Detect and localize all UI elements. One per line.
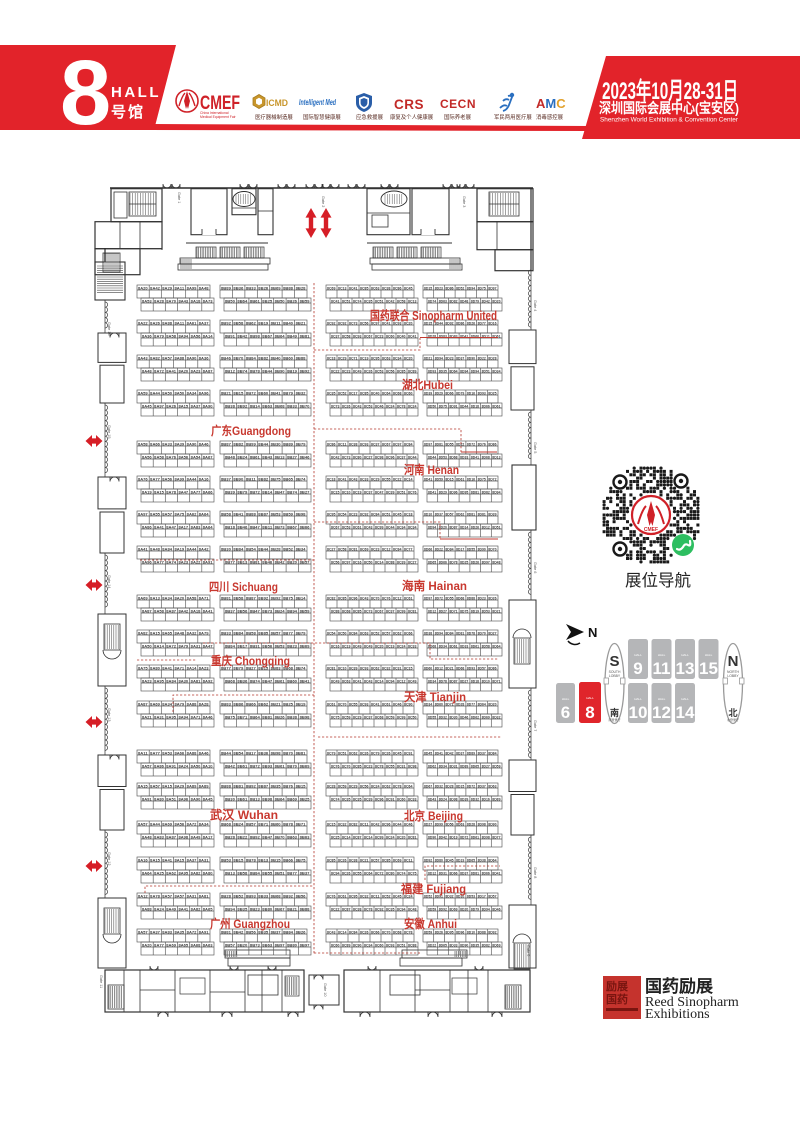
- svg-text:8B81: 8B81: [233, 784, 243, 788]
- svg-text:8B22: 8B22: [237, 835, 247, 839]
- svg-text:8B21: 8B21: [287, 907, 297, 911]
- svg-text:10: 10: [629, 703, 648, 722]
- svg-text:8C93: 8C93: [360, 442, 369, 446]
- svg-text:8D99: 8D99: [435, 822, 443, 826]
- svg-text:8B60: 8B60: [283, 356, 293, 360]
- svg-text:8C43: 8C43: [364, 679, 373, 683]
- svg-text:Intelligent Med: Intelligent Med: [299, 98, 337, 107]
- svg-text:8C85: 8C85: [360, 286, 369, 290]
- svg-text:8B62: 8B62: [246, 321, 256, 325]
- svg-text:8B53: 8B53: [271, 512, 281, 516]
- svg-text:8C84: 8C84: [349, 631, 358, 635]
- svg-text:8C44: 8C44: [408, 455, 417, 459]
- svg-text:8C17: 8C17: [349, 391, 358, 395]
- svg-text:8A48: 8A48: [175, 631, 185, 635]
- svg-text:8D20: 8D20: [492, 299, 500, 303]
- svg-text:8C37: 8C37: [364, 490, 373, 494]
- svg-text:8A17: 8A17: [179, 525, 189, 529]
- svg-text:8C26: 8C26: [360, 751, 369, 755]
- svg-text:8A56: 8A56: [162, 477, 172, 481]
- svg-text:8B26: 8B26: [296, 930, 306, 934]
- svg-text:8D96: 8D96: [449, 490, 457, 494]
- svg-text:8C35: 8C35: [386, 907, 395, 911]
- svg-text:8D69: 8D69: [449, 907, 457, 911]
- svg-text:8C14: 8C14: [342, 835, 351, 839]
- svg-text:8D34: 8D34: [439, 644, 447, 648]
- svg-text:8D46: 8D46: [460, 715, 468, 719]
- svg-text:8B52: 8B52: [283, 547, 293, 551]
- svg-text:8B71: 8B71: [296, 822, 306, 826]
- svg-text:北: 北: [728, 707, 737, 718]
- svg-text:8C92: 8C92: [360, 512, 369, 516]
- svg-text:8C88: 8C88: [386, 560, 395, 564]
- svg-text:8C31: 8C31: [397, 764, 406, 768]
- svg-text:8D71: 8D71: [492, 679, 500, 683]
- svg-text:8A99: 8A99: [175, 477, 185, 481]
- svg-text:8B11: 8B11: [271, 321, 281, 325]
- svg-text:8B92: 8B92: [300, 369, 310, 373]
- svg-text:8C76: 8C76: [327, 894, 336, 898]
- svg-text:8B97: 8B97: [275, 943, 285, 947]
- svg-text:8D26: 8D26: [471, 525, 479, 529]
- svg-text:8A96: 8A96: [179, 797, 189, 801]
- svg-text:8C33: 8C33: [360, 477, 369, 481]
- svg-text:8C37: 8C37: [331, 334, 340, 338]
- svg-text:8B87: 8B87: [246, 596, 256, 600]
- svg-text:8D68: 8D68: [456, 666, 464, 670]
- svg-text:8B24: 8B24: [233, 822, 243, 826]
- svg-text:8B37: 8B37: [221, 477, 231, 481]
- svg-text:8C92: 8C92: [327, 321, 336, 325]
- svg-text:8B72: 8B72: [250, 764, 260, 768]
- svg-text:8B88: 8B88: [300, 907, 310, 911]
- svg-text:8D61: 8D61: [471, 835, 479, 839]
- svg-text:8B56: 8B56: [237, 609, 247, 613]
- svg-text:8B70: 8B70: [300, 404, 310, 408]
- svg-text:8B84: 8B84: [250, 871, 260, 875]
- svg-text:8D22: 8D22: [478, 356, 486, 360]
- svg-text:Gate 5: Gate 5: [533, 442, 537, 453]
- svg-text:8A89: 8A89: [187, 784, 197, 788]
- svg-text:8D14: 8D14: [460, 525, 468, 529]
- svg-text:Gate 13: Gate 13: [107, 708, 111, 722]
- svg-text:8A44: 8A44: [187, 547, 197, 551]
- svg-text:8A46: 8A46: [199, 751, 209, 755]
- svg-text:CMEF: CMEF: [644, 527, 658, 533]
- svg-text:8C52: 8C52: [371, 631, 380, 635]
- svg-text:8B38: 8B38: [287, 715, 297, 719]
- svg-text:CRS: CRS: [394, 97, 424, 112]
- svg-text:8A80: 8A80: [154, 797, 164, 801]
- svg-text:8B33: 8B33: [221, 631, 231, 635]
- svg-text:8B57: 8B57: [225, 943, 235, 947]
- svg-text:8C39: 8C39: [364, 797, 373, 801]
- svg-text:8B80: 8B80: [262, 907, 272, 911]
- svg-text:8B15: 8B15: [233, 858, 243, 862]
- svg-text:8C61: 8C61: [404, 596, 413, 600]
- svg-text:8B47: 8B47: [262, 679, 272, 683]
- svg-text:8D44: 8D44: [428, 455, 436, 459]
- svg-text:8A79: 8A79: [179, 644, 189, 648]
- svg-text:8D34: 8D34: [492, 369, 500, 373]
- svg-text:8A20: 8A20: [142, 943, 152, 947]
- svg-text:8C50: 8C50: [408, 715, 417, 719]
- svg-text:8B98: 8B98: [300, 715, 310, 719]
- svg-text:8D70: 8D70: [488, 547, 496, 551]
- svg-text:8B15: 8B15: [233, 391, 243, 395]
- svg-text:8D59: 8D59: [492, 764, 500, 768]
- svg-text:Medical Equipment Fair: Medical Equipment Fair: [200, 115, 236, 119]
- svg-text:8B81: 8B81: [221, 930, 231, 934]
- svg-text:福建 Fujiang: 福建 Fujiang: [400, 881, 466, 896]
- svg-text:HALL: HALL: [562, 697, 570, 701]
- svg-text:8A36: 8A36: [142, 334, 152, 338]
- svg-text:8B61: 8B61: [237, 797, 247, 801]
- svg-text:8B34: 8B34: [296, 547, 306, 551]
- svg-text:8A46: 8A46: [203, 715, 213, 719]
- svg-text:8A31: 8A31: [191, 644, 201, 648]
- svg-text:8B84: 8B84: [233, 547, 243, 551]
- svg-text:8B89: 8B89: [221, 286, 231, 290]
- svg-text:8B42: 8B42: [225, 764, 235, 768]
- svg-text:8B81: 8B81: [300, 334, 310, 338]
- svg-text:8B35: 8B35: [271, 784, 281, 788]
- svg-text:天津 Tianjin: 天津 Tianjin: [404, 689, 466, 704]
- svg-text:8B25: 8B25: [283, 702, 293, 706]
- svg-text:8D72: 8D72: [467, 442, 475, 446]
- svg-text:8D48: 8D48: [460, 299, 468, 303]
- svg-text:8A91: 8A91: [166, 764, 176, 768]
- svg-text:8A45: 8A45: [203, 797, 213, 801]
- svg-text:8A74: 8A74: [166, 560, 176, 564]
- svg-text:8D65: 8D65: [471, 764, 479, 768]
- svg-text:8A58: 8A58: [138, 442, 148, 446]
- svg-text:HALL: HALL: [705, 653, 713, 657]
- svg-text:8C62: 8C62: [393, 631, 402, 635]
- svg-text:8A68: 8A68: [191, 943, 201, 947]
- svg-text:8A37: 8A37: [199, 321, 209, 325]
- svg-text:8C49: 8C49: [331, 679, 340, 683]
- svg-text:湖北Hubei: 湖北Hubei: [402, 377, 453, 392]
- svg-text:8D79: 8D79: [471, 299, 479, 303]
- svg-text:8B32: 8B32: [296, 391, 306, 395]
- svg-text:8B84: 8B84: [225, 644, 235, 648]
- svg-text:8D94: 8D94: [428, 525, 436, 529]
- svg-text:号馆: 号馆: [111, 103, 145, 121]
- svg-text:8C96: 8C96: [349, 596, 358, 600]
- svg-text:8B30: 8B30: [271, 442, 281, 446]
- svg-text:8B18: 8B18: [225, 525, 235, 529]
- svg-text:8A44: 8A44: [150, 822, 160, 826]
- svg-text:8C51: 8C51: [342, 299, 351, 303]
- svg-text:8D23: 8D23: [445, 356, 453, 360]
- svg-text:8A95: 8A95: [154, 679, 164, 683]
- svg-text:8B63: 8B63: [262, 943, 272, 947]
- svg-text:8C99: 8C99: [397, 609, 406, 613]
- svg-text:8B27: 8B27: [300, 490, 310, 494]
- svg-text:8B68: 8B68: [275, 404, 285, 408]
- svg-text:8C70: 8C70: [338, 702, 347, 706]
- svg-text:8A53: 8A53: [142, 299, 152, 303]
- svg-text:8A66: 8A66: [150, 442, 160, 446]
- svg-text:8A41: 8A41: [166, 369, 176, 373]
- svg-text:8B61: 8B61: [250, 455, 260, 459]
- svg-text:8D20: 8D20: [488, 702, 496, 706]
- svg-text:国际智慧健康展: 国际智慧健康展: [303, 113, 341, 121]
- svg-text:8A48: 8A48: [142, 835, 152, 839]
- svg-text:8D97: 8D97: [482, 560, 490, 564]
- svg-text:8A41: 8A41: [138, 547, 148, 551]
- svg-text:8C35: 8C35: [364, 299, 373, 303]
- svg-text:8A75: 8A75: [175, 512, 185, 516]
- svg-text:8A50: 8A50: [175, 391, 185, 395]
- svg-text:8A28: 8A28: [154, 299, 164, 303]
- svg-text:8B28: 8B28: [225, 835, 235, 839]
- svg-text:8D98: 8D98: [478, 822, 486, 826]
- svg-text:8B66: 8B66: [300, 525, 310, 529]
- svg-text:8B55: 8B55: [262, 871, 272, 875]
- svg-text:8B77: 8B77: [287, 871, 297, 875]
- svg-text:8B46: 8B46: [300, 455, 310, 459]
- svg-text:8C79: 8C79: [371, 751, 380, 755]
- svg-text:8C85: 8C85: [397, 369, 406, 373]
- svg-text:8C44: 8C44: [393, 822, 402, 826]
- svg-text:8C55: 8C55: [386, 764, 395, 768]
- svg-text:8A33: 8A33: [162, 442, 172, 446]
- svg-text:8C97: 8C97: [393, 442, 402, 446]
- svg-text:8C68: 8C68: [393, 930, 402, 934]
- svg-text:8B47: 8B47: [275, 490, 285, 494]
- svg-text:8B61: 8B61: [275, 764, 285, 768]
- svg-text:8D26: 8D26: [435, 930, 443, 934]
- svg-text:8A72: 8A72: [154, 369, 164, 373]
- svg-text:8C84: 8C84: [404, 442, 413, 446]
- svg-text:8C51: 8C51: [338, 751, 347, 755]
- svg-text:8A72: 8A72: [187, 930, 197, 934]
- svg-text:8A72: 8A72: [187, 822, 197, 826]
- svg-text:8B98: 8B98: [296, 512, 306, 516]
- svg-text:8D61: 8D61: [492, 404, 500, 408]
- svg-text:8C41: 8C41: [408, 334, 417, 338]
- svg-text:8D33: 8D33: [449, 943, 457, 947]
- svg-text:8C49: 8C49: [353, 369, 362, 373]
- svg-text:8C56: 8C56: [360, 321, 369, 325]
- svg-text:8B44: 8B44: [258, 442, 268, 446]
- svg-text:8A41: 8A41: [162, 858, 172, 862]
- svg-text:8B15: 8B15: [271, 858, 281, 862]
- svg-text:8B40: 8B40: [283, 321, 293, 325]
- svg-text:8D37: 8D37: [478, 751, 486, 755]
- svg-text:8A50: 8A50: [162, 391, 172, 395]
- svg-text:8B86: 8B86: [233, 702, 243, 706]
- svg-text:8B19: 8B19: [296, 702, 306, 706]
- svg-text:8D75: 8D75: [478, 477, 486, 481]
- svg-text:8C43: 8C43: [353, 404, 362, 408]
- svg-text:8D61: 8D61: [456, 477, 464, 481]
- svg-text:8A23: 8A23: [142, 679, 152, 683]
- svg-text:8A82: 8A82: [191, 907, 201, 911]
- svg-text:8C54: 8C54: [338, 512, 347, 516]
- svg-text:8C12: 8C12: [393, 596, 402, 600]
- svg-text:8B11: 8B11: [262, 525, 272, 529]
- svg-text:8D69: 8D69: [482, 715, 490, 719]
- svg-text:8B82: 8B82: [233, 442, 243, 446]
- svg-text:8C97: 8C97: [342, 560, 351, 564]
- svg-text:8B58: 8B58: [233, 321, 243, 325]
- svg-text:8A78: 8A78: [150, 894, 160, 898]
- svg-text:8C25: 8C25: [331, 835, 340, 839]
- svg-text:8B78: 8B78: [283, 822, 293, 826]
- svg-text:8A71: 8A71: [191, 715, 201, 719]
- svg-text:8B47: 8B47: [262, 835, 272, 839]
- svg-text:8D94: 8D94: [482, 907, 490, 911]
- svg-text:8C81: 8C81: [408, 835, 417, 839]
- svg-text:8C81: 8C81: [327, 666, 336, 670]
- svg-text:8A34: 8A34: [199, 822, 209, 826]
- svg-text:8A11: 8A11: [175, 321, 185, 325]
- svg-text:8A55: 8A55: [150, 512, 160, 516]
- svg-text:8B84: 8B84: [283, 930, 293, 934]
- svg-text:8B72: 8B72: [250, 490, 260, 494]
- svg-text:8B74: 8B74: [296, 477, 306, 481]
- svg-text:8A24: 8A24: [154, 907, 164, 911]
- svg-text:8C26: 8C26: [360, 930, 369, 934]
- svg-text:8B63: 8B63: [287, 835, 297, 839]
- svg-text:8A86: 8A86: [142, 525, 152, 529]
- svg-text:8A80: 8A80: [203, 871, 213, 875]
- svg-text:8A54: 8A54: [191, 455, 201, 459]
- svg-text:8C57: 8C57: [371, 858, 380, 862]
- svg-text:8A29: 8A29: [162, 286, 172, 290]
- svg-text:8A90: 8A90: [187, 356, 197, 360]
- svg-text:8C82: 8C82: [327, 596, 336, 600]
- svg-text:8B92: 8B92: [250, 835, 260, 839]
- svg-text:8D87: 8D87: [449, 525, 457, 529]
- svg-text:8A76: 8A76: [138, 477, 148, 481]
- svg-text:8B76: 8B76: [283, 784, 293, 788]
- svg-text:8B65: 8B65: [283, 477, 293, 481]
- svg-text:8C72: 8C72: [375, 871, 384, 875]
- svg-text:8C78: 8C78: [397, 404, 406, 408]
- svg-text:8B92: 8B92: [221, 321, 231, 325]
- svg-text:8A86: 8A86: [154, 764, 164, 768]
- svg-text:8C24: 8C24: [408, 404, 417, 408]
- svg-text:8B73: 8B73: [262, 609, 272, 613]
- svg-text:8B47: 8B47: [250, 525, 260, 529]
- svg-text:8D39: 8D39: [424, 391, 432, 395]
- svg-text:8C19: 8C19: [342, 644, 351, 648]
- svg-text:8C15: 8C15: [331, 490, 340, 494]
- svg-text:8B84: 8B84: [233, 631, 243, 635]
- svg-text:8D17: 8D17: [478, 894, 486, 898]
- svg-text:AMC: AMC: [536, 96, 566, 111]
- svg-text:8C68: 8C68: [342, 609, 351, 613]
- svg-text:8D37: 8D37: [435, 512, 443, 516]
- svg-text:8A62: 8A62: [166, 871, 176, 875]
- svg-text:8D91: 8D91: [449, 404, 457, 408]
- svg-text:8D37: 8D37: [456, 751, 464, 755]
- svg-text:8B36: 8B36: [233, 286, 243, 290]
- svg-text:武汉 Wuhan: 武汉 Wuhan: [210, 807, 278, 822]
- svg-text:8: 8: [585, 703, 594, 722]
- svg-text:8C91: 8C91: [386, 797, 395, 801]
- svg-text:8D19: 8D19: [449, 835, 457, 839]
- svg-text:8B24: 8B24: [237, 455, 247, 459]
- svg-text:8C51: 8C51: [375, 299, 384, 303]
- svg-text:8D79: 8D79: [456, 391, 464, 395]
- svg-text:8B15: 8B15: [296, 784, 306, 788]
- svg-text:8B94: 8B94: [225, 907, 235, 911]
- svg-text:8A88: 8A88: [142, 907, 152, 911]
- svg-text:8A71: 8A71: [175, 666, 185, 670]
- svg-text:8C20: 8C20: [404, 356, 413, 360]
- svg-text:8C78: 8C78: [393, 784, 402, 788]
- svg-text:8D27: 8D27: [424, 822, 432, 826]
- svg-text:8C24: 8C24: [397, 644, 406, 648]
- svg-text:8A95: 8A95: [166, 715, 176, 719]
- svg-text:8A48: 8A48: [142, 369, 152, 373]
- svg-text:8C63: 8C63: [371, 286, 380, 290]
- svg-text:8B35: 8B35: [237, 907, 247, 911]
- svg-text:8C43: 8C43: [349, 477, 358, 481]
- svg-text:8D62: 8D62: [471, 715, 479, 719]
- svg-text:8A75: 8A75: [138, 666, 148, 670]
- svg-text:8B78: 8B78: [246, 858, 256, 862]
- svg-text:8D22: 8D22: [435, 547, 443, 551]
- svg-text:8C77: 8C77: [404, 547, 413, 551]
- svg-text:8D55: 8D55: [445, 596, 453, 600]
- svg-text:8D39: 8D39: [488, 512, 496, 516]
- svg-text:8D68: 8D68: [482, 455, 490, 459]
- svg-text:南: 南: [610, 707, 619, 718]
- svg-text:8A56: 8A56: [191, 334, 201, 338]
- svg-text:8A62: 8A62: [187, 512, 197, 516]
- svg-text:8C94: 8C94: [331, 871, 340, 875]
- svg-text:8C10: 8C10: [342, 490, 351, 494]
- svg-text:8D93: 8D93: [478, 391, 486, 395]
- svg-text:8A99: 8A99: [187, 286, 197, 290]
- svg-text:8C42: 8C42: [331, 455, 340, 459]
- svg-text:8A14: 8A14: [203, 334, 213, 338]
- svg-text:8D84: 8D84: [445, 631, 453, 635]
- svg-text:8D56: 8D56: [445, 822, 453, 826]
- svg-text:8B64: 8B64: [275, 797, 285, 801]
- svg-text:8B79: 8B79: [283, 391, 293, 395]
- svg-text:8A41: 8A41: [154, 525, 164, 529]
- svg-text:8D12: 8D12: [435, 666, 443, 670]
- svg-text:8C55: 8C55: [353, 871, 362, 875]
- svg-text:8B38: 8B38: [225, 404, 235, 408]
- svg-text:8C23: 8C23: [371, 547, 380, 551]
- svg-text:8D82: 8D82: [482, 490, 490, 494]
- svg-text:8A18: 8A18: [191, 299, 201, 303]
- svg-text:8C43: 8C43: [364, 525, 373, 529]
- svg-text:8C59: 8C59: [342, 715, 351, 719]
- svg-text:8D97: 8D97: [488, 286, 496, 290]
- svg-text:8A82: 8A82: [138, 631, 148, 635]
- svg-text:HALL: HALL: [658, 653, 666, 657]
- svg-text:8C75: 8C75: [408, 871, 417, 875]
- svg-text:8A97: 8A97: [154, 404, 164, 408]
- svg-text:8A64: 8A64: [142, 871, 152, 875]
- svg-text:8B89: 8B89: [283, 442, 293, 446]
- svg-text:8D25: 8D25: [460, 560, 468, 564]
- svg-text:8B17: 8B17: [237, 644, 247, 648]
- svg-text:8B43: 8B43: [262, 455, 272, 459]
- svg-text:8B98: 8B98: [250, 334, 260, 338]
- svg-text:8D38: 8D38: [478, 858, 486, 862]
- svg-text:8A37: 8A37: [187, 858, 197, 862]
